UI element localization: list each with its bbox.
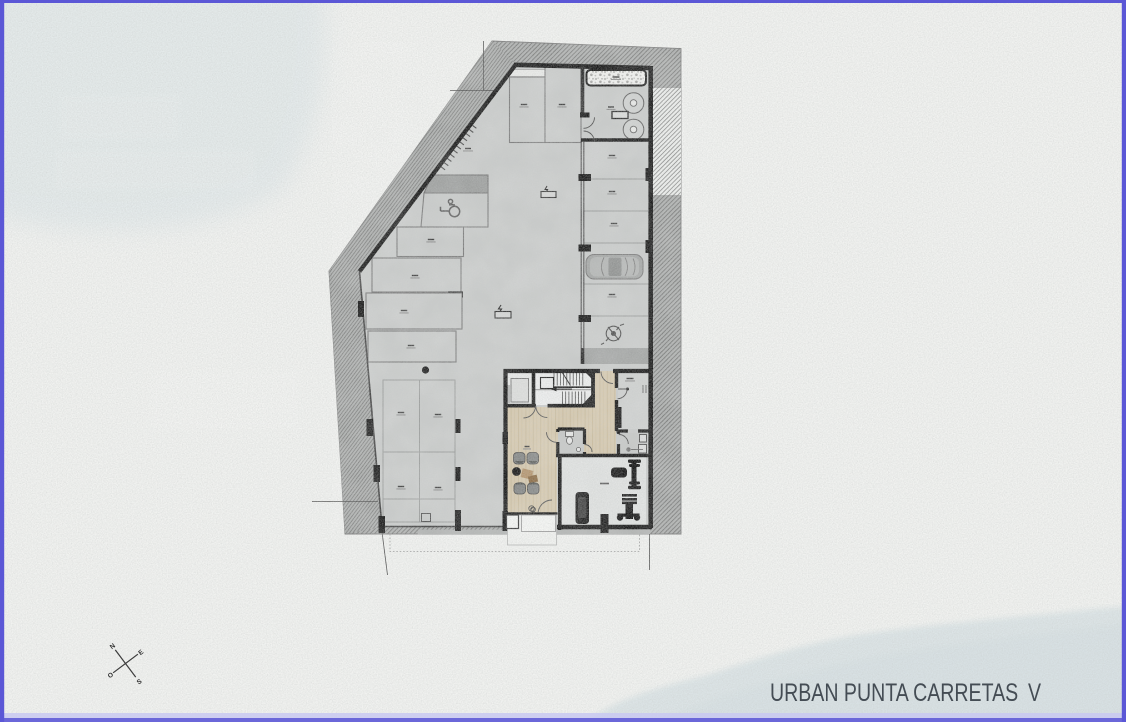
svg-text:URBAN PUNTA CARRETAS V: URBAN PUNTA CARRETAS V	[770, 679, 1041, 707]
